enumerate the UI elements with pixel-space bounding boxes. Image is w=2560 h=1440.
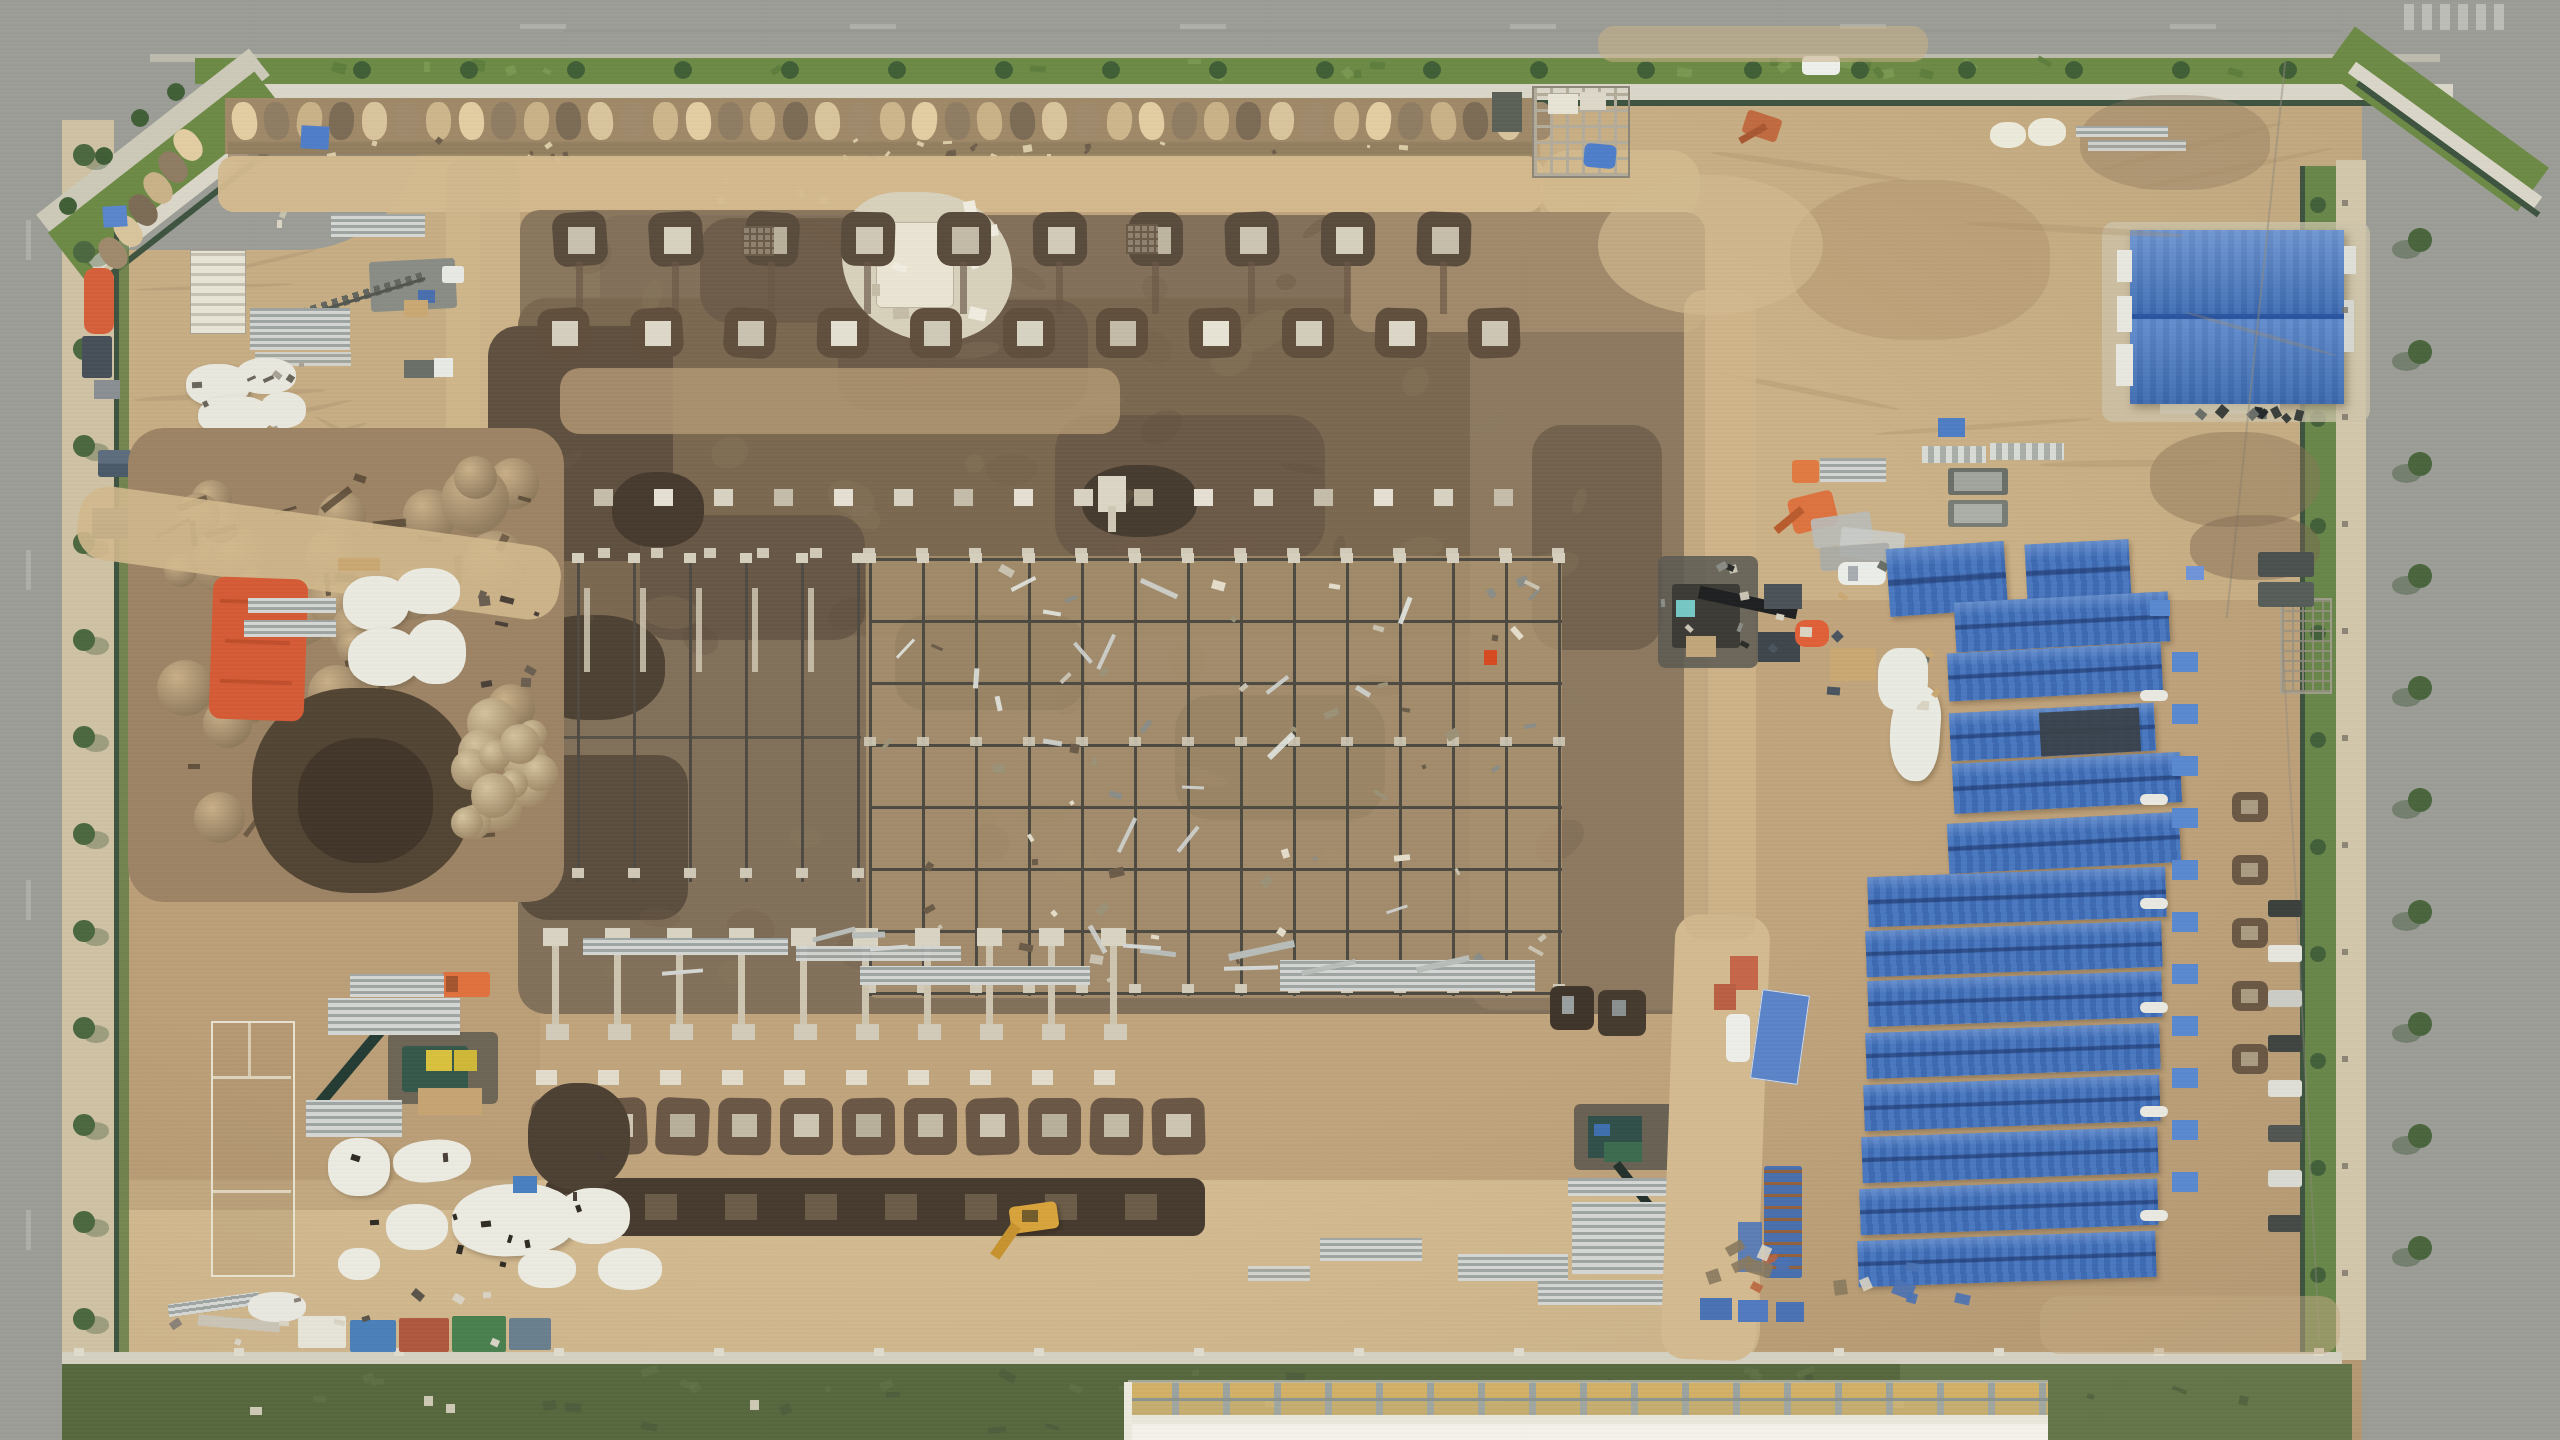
construction-site-aerial-photo [0, 0, 2560, 1440]
photo-grain [0, 0, 2560, 1440]
